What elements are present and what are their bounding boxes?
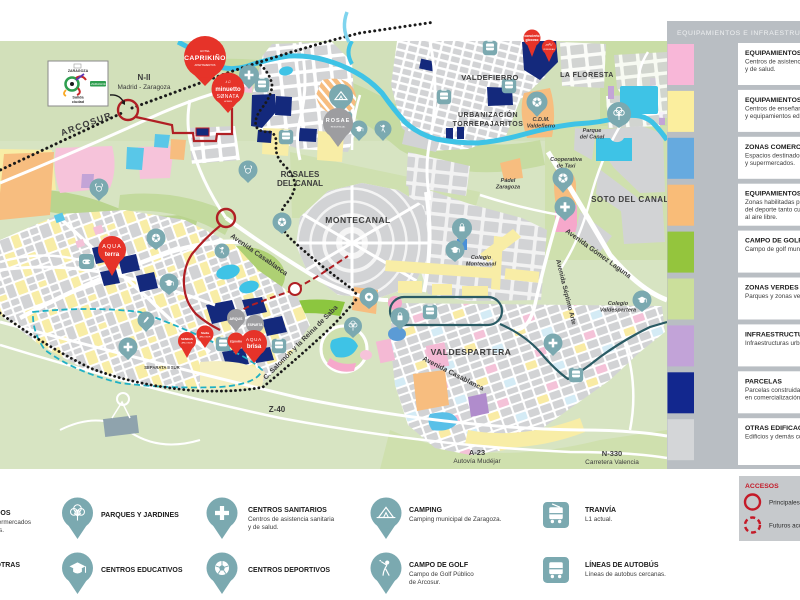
svg-text:DEL CANAL: DEL CANAL <box>277 179 323 188</box>
svg-text:Edificios y demás construccion: Edificios y demás construcciones. <box>745 434 800 441</box>
svg-text:♪♫: ♪♫ <box>225 79 231 84</box>
svg-text:en comercialización.: en comercialización. <box>745 394 800 401</box>
svg-text:N-330: N-330 <box>602 449 622 458</box>
svg-text:EQUIPAMIENTOS E INFRAESTRUCTUR: EQUIPAMIENTOS E INFRAESTRUCTURAS <box>677 30 800 37</box>
svg-text:Centros de asistencia sanitari: Centros de asistencia sanitaria <box>745 59 800 66</box>
svg-text:CENTROS SANITARIOS: CENTROS SANITARIOS <box>248 507 327 514</box>
svg-text:CAPRIKIÑO: CAPRIKIÑO <box>184 53 226 62</box>
svg-text:Líneas de autobus cercanas.: Líneas de autobus cercanas. <box>585 571 666 578</box>
svg-text:Zaragoza: Zaragoza <box>495 185 520 191</box>
svg-text:ACCESOS: ACCESOS <box>745 483 779 490</box>
svg-text:TORREPAJARITOS: TORREPAJARITOS <box>453 121 524 128</box>
svg-text:Centros de enseñanza: Centros de enseñanza <box>745 105 800 112</box>
svg-text:y equipamientos educativos.: y equipamientos educativos. <box>745 113 800 120</box>
svg-text:Valdefierro: Valdefierro <box>527 124 556 130</box>
svg-text:HOMES: HOMES <box>224 101 233 103</box>
svg-text:del deporte tanto cubiertas co: del deporte tanto cubiertas como <box>745 207 800 214</box>
svg-text:CENTROS EDUCATIVOS: CENTROS EDUCATIVOS <box>101 567 183 574</box>
svg-text:EQUIPAMIENTOS DEPORTIVOS: EQUIPAMIENTOS DEPORTIVOS <box>745 191 800 198</box>
svg-text:CENTROS DEPORTIVOS: CENTROS DEPORTIVOS <box>248 567 330 574</box>
svg-text:y supermercados.: y supermercados. <box>745 160 795 167</box>
svg-text:Infraestructuras urbanas.: Infraestructuras urbanas. <box>745 340 800 347</box>
svg-text:L1 actual.: L1 actual. <box>585 516 613 523</box>
svg-text:EQUIPAMIENTOS EDUCATIVOS: EQUIPAMIENTOS EDUCATIVOS <box>745 97 800 104</box>
svg-text:N-II: N-II <box>138 73 151 82</box>
svg-text:OTRAS: OTRAS <box>0 562 20 569</box>
svg-text:al aire libre.: al aire libre. <box>745 214 778 221</box>
svg-text:minuetto: minuetto <box>215 87 241 93</box>
svg-text:Colegio: Colegio <box>471 255 492 261</box>
svg-text:CAMPO DE GOLF: CAMPO DE GOLF <box>745 238 800 245</box>
svg-text:Madrid - Zaragoza: Madrid - Zaragoza <box>117 84 170 91</box>
svg-text:Autovía Mudéjar: Autovía Mudéjar <box>453 458 501 465</box>
svg-text:ARCOSUR: ARCOSUR <box>200 336 211 339</box>
svg-text:AQUA: AQUA <box>246 337 262 342</box>
svg-text:Montecanal: Montecanal <box>466 262 497 268</box>
svg-text:AQUA: AQUA <box>102 244 122 250</box>
svg-text:Parques y zonas verdes.: Parques y zonas verdes. <box>745 293 800 300</box>
svg-text:RESIDENCIAL: RESIDENCIAL <box>331 126 346 129</box>
svg-text:SUPERMERCADOS: SUPERMERCADOS <box>0 510 11 517</box>
svg-text:ARQUS: ARQUS <box>230 317 244 321</box>
svg-text:ZONAS VERDES: ZONAS VERDES <box>745 285 799 292</box>
svg-text:ciudad: ciudad <box>72 100 85 104</box>
svg-text:VALDESPARTERA: VALDESPARTERA <box>431 347 512 357</box>
svg-text:Campo de golf municipal.: Campo de golf municipal. <box>745 246 800 253</box>
svg-text:ZONAS COMERCIALES: ZONAS COMERCIALES <box>745 144 800 151</box>
svg-text:HOTEL: HOTEL <box>200 49 210 53</box>
svg-text:de Taxi: de Taxi <box>557 164 576 170</box>
svg-text:PARQUES Y JARDINES: PARQUES Y JARDINES <box>101 512 179 519</box>
svg-text:APARTAMENTOS: APARTAMENTOS <box>195 63 216 67</box>
svg-text:Parque: Parque <box>583 128 602 134</box>
svg-text:ARCOSUR: ARCOSUR <box>182 342 193 345</box>
svg-text:VIVIENDAS: VIVIENDAS <box>543 48 555 51</box>
svg-text:del Canal: del Canal <box>580 135 605 141</box>
svg-text:EQUIPAMIENTOS SANITARIOS: EQUIPAMIENTOS SANITARIOS <box>745 50 800 57</box>
svg-text:CAMPING: CAMPING <box>409 507 443 514</box>
svg-text:ROSALES: ROSALES <box>281 170 320 179</box>
svg-text:A-23: A-23 <box>469 448 485 457</box>
svg-text:SEPARATA II SUR: SEPARATA II SUR <box>144 365 179 370</box>
svg-text:VALDEFIERRO: VALDEFIERRO <box>461 73 519 82</box>
svg-text:Principales accesos.: Principales accesos. <box>769 500 800 507</box>
svg-text:ZARAGOZA: ZARAGOZA <box>68 69 89 73</box>
svg-text:Zonas habilitadas para la prác: Zonas habilitadas para la práctica <box>745 199 800 206</box>
svg-text:Pádel: Pádel <box>501 178 516 184</box>
svg-text:LÍNEAS DE AUTOBÚS: LÍNEAS DE AUTOBÚS <box>585 560 659 569</box>
svg-text:LA FLORESTA: LA FLORESTA <box>560 72 614 79</box>
svg-text:Stella: Stella <box>201 331 209 335</box>
svg-text:OTRAS EDIFICACIONES: OTRAS EDIFICACIONES <box>745 425 800 432</box>
svg-text:Campo de Golf Público: Campo de Golf Público <box>409 571 474 578</box>
svg-text:Futuros accesos.: Futuros accesos. <box>769 523 800 530</box>
svg-text:Zona de supermercados: Zona de supermercados <box>0 519 31 526</box>
svg-text:PARCELAS: PARCELAS <box>745 378 782 385</box>
svg-text:Camping municipal de Zaragoza.: Camping municipal de Zaragoza. <box>409 516 502 523</box>
svg-text:MONTECANAL: MONTECANAL <box>325 215 390 225</box>
svg-text:TRANVÍA: TRANVÍA <box>585 505 616 514</box>
svg-text:mºV: mºV <box>546 43 553 47</box>
svg-text:Centros de asistencia sanitari: Centros de asistencia sanitaria <box>248 516 335 523</box>
svg-text:Espacios destinados al comerci: Espacios destinados al comercio <box>745 152 800 159</box>
svg-text:INFRAESTRUCTURAS: INFRAESTRUCTURAS <box>745 331 800 338</box>
svg-text:Z-40: Z-40 <box>269 405 286 414</box>
svg-text:SENDAS: SENDAS <box>181 337 193 341</box>
svg-text:terra: terra <box>105 251 120 258</box>
svg-text:SØNATA: SØNATA <box>217 94 240 100</box>
svg-text:URBANIZACIÓN: URBANIZACIÓN <box>458 110 518 119</box>
svg-text:EQUARA: EQUARA <box>230 340 242 344</box>
svg-text:y de salud.: y de salud. <box>248 524 279 531</box>
svg-text:cercanos.: cercanos. <box>0 527 4 534</box>
svg-text:Valdespartera: Valdespartera <box>600 308 636 314</box>
svg-text:brisa: brisa <box>247 344 262 350</box>
svg-text:ROSAE: ROSAE <box>326 118 351 124</box>
svg-text:giocoso: giocoso <box>526 38 539 42</box>
svg-text:C.D.M.: C.D.M. <box>532 117 550 123</box>
svg-text:y de salud.: y de salud. <box>745 66 776 73</box>
svg-text:A ZARAGOZA: A ZARAGOZA <box>88 82 107 86</box>
svg-text:SOTO DEL CANAL: SOTO DEL CANAL <box>591 195 669 204</box>
svg-text:Colegio: Colegio <box>608 301 629 307</box>
svg-text:Cooperativa: Cooperativa <box>550 157 582 163</box>
svg-text:CAMPO DE GOLF: CAMPO DE GOLF <box>409 562 469 569</box>
svg-text:Salida: Salida <box>72 96 84 100</box>
svg-text:de Arcosur.: de Arcosur. <box>409 579 441 586</box>
svg-text:Parcelas construidas o: Parcelas construidas o <box>745 387 800 394</box>
svg-text:Carretera Valencia: Carretera Valencia <box>585 459 639 466</box>
svg-text:ESPARTA: ESPARTA <box>248 323 263 327</box>
